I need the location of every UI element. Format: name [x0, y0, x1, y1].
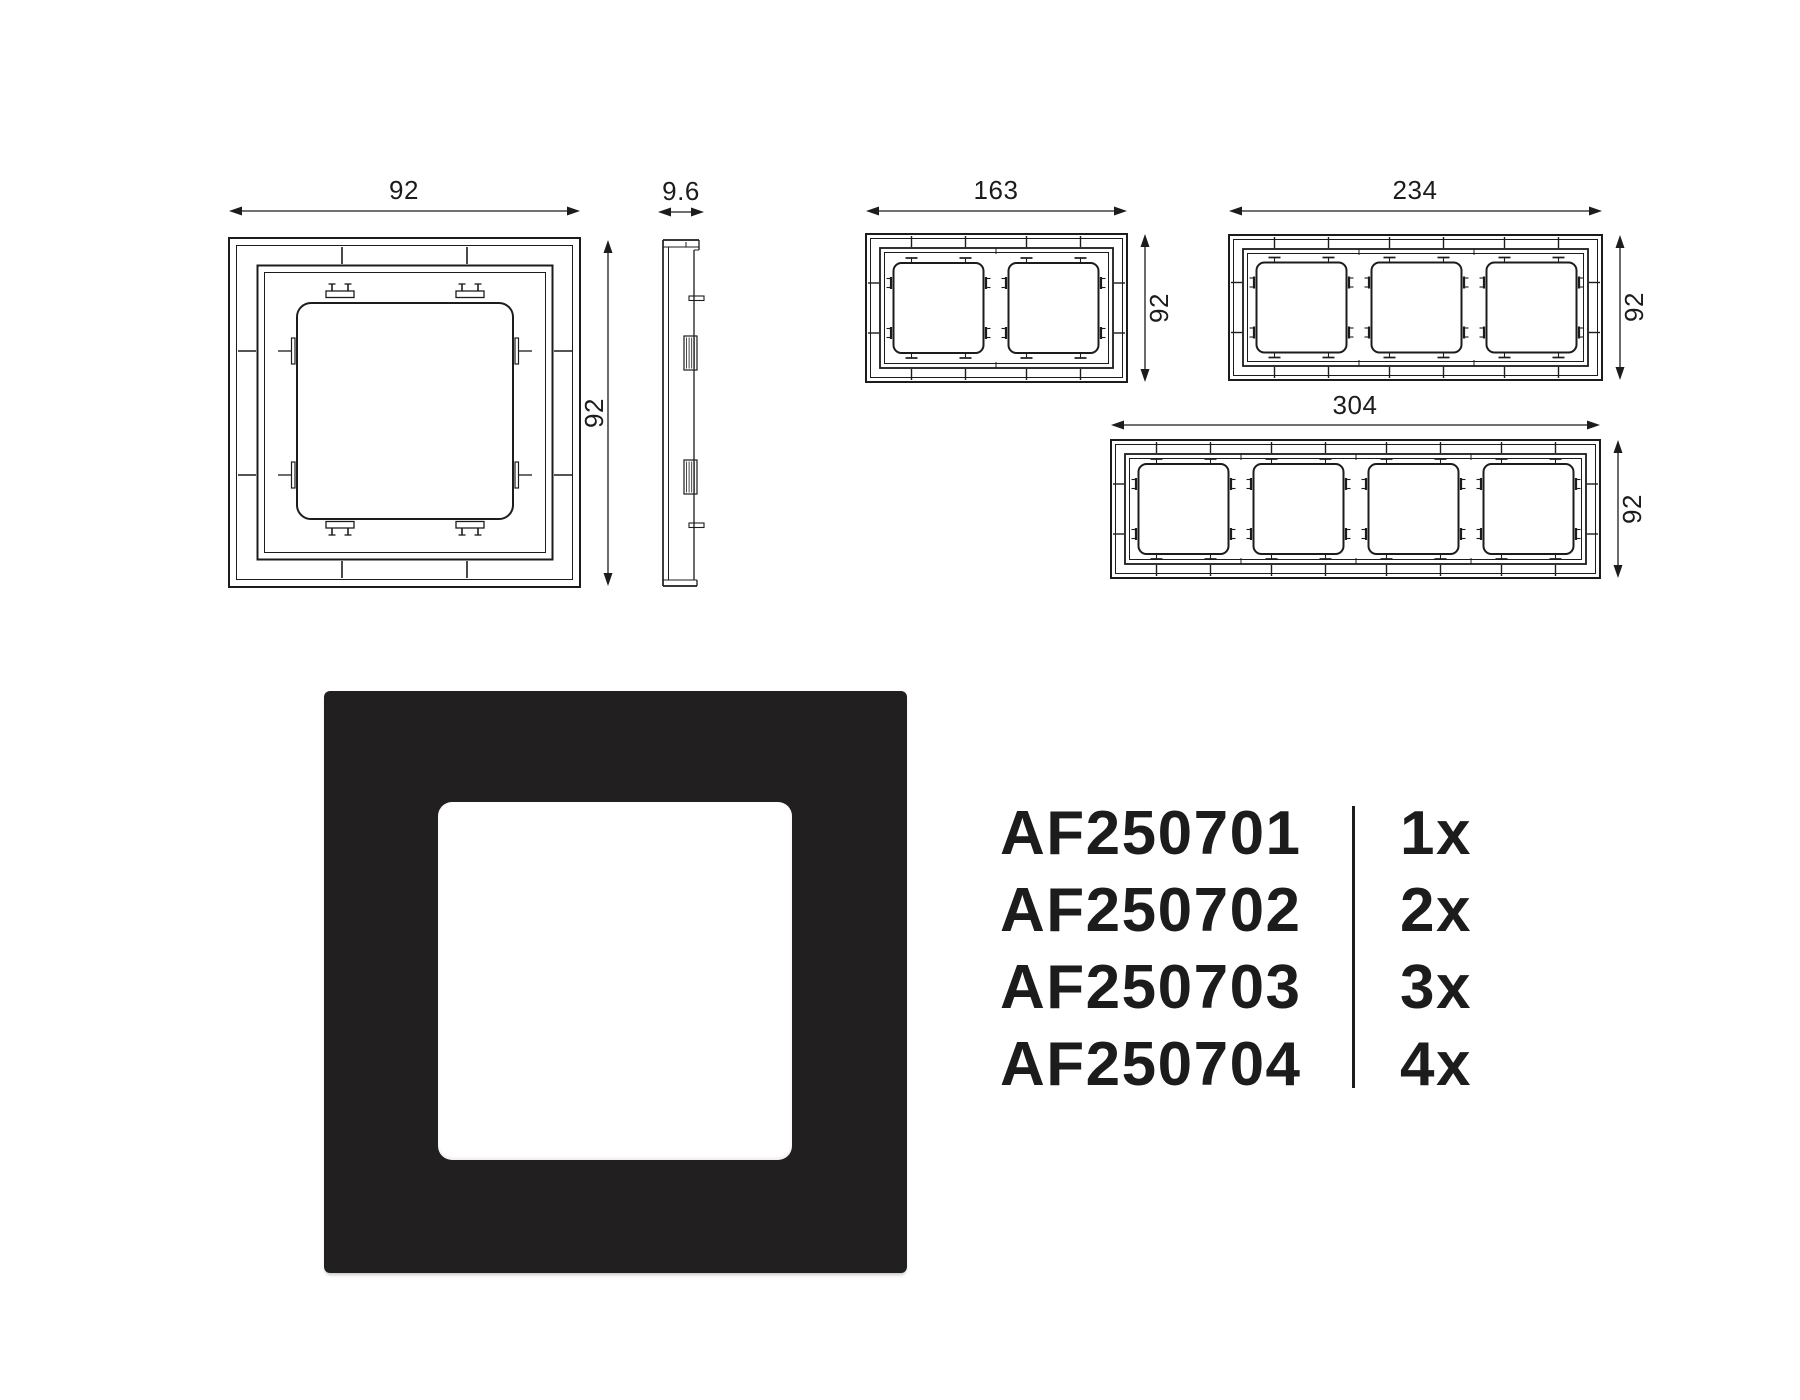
product-quantity: 4x: [1400, 1029, 1472, 1100]
product-code: AF250703: [1000, 952, 1400, 1023]
dim-label-4gang-height: 92: [1617, 494, 1647, 524]
drawing-frame-1gang-front: [229, 207, 613, 588]
dim-label-1gang-height: 92: [579, 398, 609, 428]
product-row: AF250701 1x: [1000, 795, 1600, 872]
product-code: AF250702: [1000, 875, 1400, 946]
product-spec-sheet: 92 92 9.6 163 92 234 92 304 92 AF250701 …: [0, 0, 1800, 1400]
drawing-frame-4gang-front: [1111, 421, 1623, 579]
product-quantity: 3x: [1400, 952, 1472, 1023]
dim-label-1gang-width: 92: [389, 175, 419, 205]
product-code-table: AF250701 1x AF250702 2x AF250703 3x AF25…: [1000, 795, 1600, 1103]
dim-label-4gang-width: 304: [1333, 390, 1378, 420]
product-quantity: 2x: [1400, 875, 1472, 946]
product-photo-frame-black: [324, 691, 907, 1273]
tech-drawings-svg: 92 92 9.6 163 92 234 92 304 92: [0, 0, 1800, 660]
dim-label-2gang-height: 92: [1144, 293, 1174, 323]
dim-label-2gang-width: 163: [974, 175, 1019, 205]
product-row: AF250703 3x: [1000, 949, 1600, 1026]
drawing-frame-2gang-front: [866, 207, 1150, 383]
product-code: AF250701: [1000, 798, 1400, 869]
dim-label-3gang-height: 92: [1619, 292, 1649, 322]
dim-label-profile-depth: 9.6: [662, 176, 700, 206]
product-row: AF250704 4x: [1000, 1026, 1600, 1103]
table-divider-line: [1352, 806, 1355, 1088]
dim-label-3gang-width: 234: [1393, 175, 1438, 205]
product-code: AF250704: [1000, 1029, 1400, 1100]
product-row: AF250702 2x: [1000, 872, 1600, 949]
drawing-frame-3gang-front: [1229, 207, 1625, 381]
product-quantity: 1x: [1400, 798, 1472, 869]
drawing-frame-side-profile: [658, 208, 704, 587]
product-photo-opening: [438, 802, 792, 1160]
